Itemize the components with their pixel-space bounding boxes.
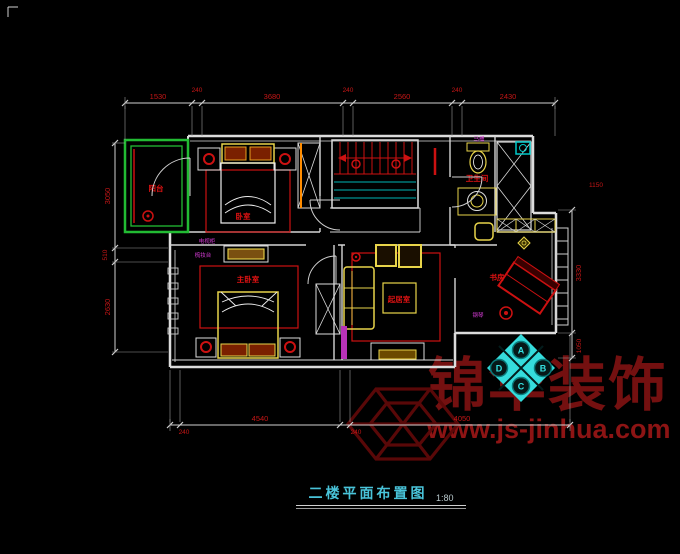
stair-arrow: [338, 154, 346, 162]
lamp-icon: [201, 342, 211, 352]
piano-stool-dot: [504, 311, 508, 315]
lamp-icon: [280, 154, 290, 164]
stair-arrow: [404, 154, 412, 162]
dresser-annotation: 梳妆台: [195, 251, 212, 259]
master-door-arc: [308, 256, 336, 284]
bathroom: 马桶 卫生间: [452, 135, 496, 215]
title-underline: [296, 505, 466, 506]
family-room: 起居室: [341, 245, 440, 360]
blanket-lines: [221, 292, 277, 312]
title-underline-2: [296, 508, 466, 509]
washbasin-inner: [471, 195, 483, 207]
blanket-lines: [225, 197, 271, 214]
watermark-logo: [348, 389, 458, 459]
pillow: [249, 344, 275, 356]
sheet-corner-mark: [8, 7, 18, 17]
stair-rails: [334, 182, 416, 198]
ceiling-lamp-dot: [355, 256, 357, 258]
toilet-tank: [467, 143, 489, 151]
dim-value: 2560: [394, 92, 411, 101]
dim-value: 1050: [576, 338, 583, 353]
bedroom-label: 卧室: [236, 211, 251, 221]
dim-value: 3680: [264, 92, 281, 101]
armchair: [399, 245, 421, 267]
drawing-scale: 1:80: [436, 493, 454, 503]
armchair: [376, 245, 396, 266]
flue-circle: [520, 145, 527, 152]
elevation-letter-c: C: [518, 382, 525, 392]
cad-floorplan-canvas: 锦华装饰 www.js-jinhua.com: [0, 0, 680, 554]
dim-value: 1150: [589, 182, 603, 189]
bedroom-door-arc: [310, 200, 340, 230]
dimension-chain-left: 3050 510 2630: [102, 140, 168, 355]
bedroom: 卧室: [198, 143, 340, 232]
drawing-title: 二楼平面布置图: [309, 483, 428, 503]
study-label: 书房: [490, 272, 505, 282]
dim-value: 3330: [574, 265, 583, 282]
pillow: [250, 147, 271, 160]
pillow: [225, 147, 246, 160]
dim-value: 240: [343, 87, 354, 94]
piano-annotation: 钢琴: [472, 311, 484, 319]
dim-value: 3050: [103, 188, 112, 205]
balcony-label: 阳台: [149, 183, 164, 193]
staircase: [332, 140, 418, 208]
magenta-bar: [341, 326, 347, 359]
lamp-icon: [204, 154, 214, 164]
balcony: 阳台: [125, 140, 190, 232]
floor-drain-dot: [147, 215, 150, 218]
title-block: 二楼平面布置图 1:80: [296, 483, 466, 509]
nightstand: [196, 338, 216, 357]
dim-value: 2630: [103, 299, 112, 316]
dim-value: 2430: [500, 92, 517, 101]
dimension-chain-right: 3330 1050 1150: [558, 182, 603, 361]
elevation-letter-b: B: [540, 364, 547, 374]
dim-value: 4050: [454, 414, 471, 423]
pillow: [221, 344, 247, 356]
toilet-bowl: [470, 151, 486, 173]
table-lamp-icon: [518, 237, 530, 249]
tv: [379, 350, 416, 359]
sofa-cushion-lines: [344, 271, 374, 325]
master-bedroom: 电视柜 梳妆台 主卧室: [168, 237, 340, 358]
bay-window: [552, 228, 568, 325]
piano: [498, 257, 559, 314]
nightstand: [280, 338, 300, 357]
closet: [497, 142, 531, 230]
dim-value: 4540: [252, 414, 269, 423]
desk-chair: [475, 223, 493, 240]
nightstand: [198, 148, 220, 170]
study: 书房 钢琴: [472, 219, 559, 319]
master-label: 主卧室: [237, 274, 260, 284]
dresser-top: [228, 249, 264, 259]
bathroom-label: 卫生间: [466, 173, 489, 183]
toilet-bowl-inner: [474, 155, 483, 169]
elevation-marker: A B C D: [487, 334, 555, 402]
sofa: [344, 267, 374, 329]
dim-value: 240: [179, 429, 190, 436]
lamp-icon: [285, 342, 295, 352]
dimension-chain-top: 1530 240 3680 240 2560 240 2430: [122, 87, 558, 140]
dim-value: 1530: [150, 92, 167, 101]
dim-value: 510: [102, 249, 109, 260]
floorplan-drawing: 阳台 卧室: [0, 0, 680, 554]
family-room-label: 起居室: [387, 294, 411, 304]
dim-value: 240: [452, 87, 463, 94]
elevation-letter-a: A: [518, 346, 525, 356]
elevation-letter-d: D: [496, 364, 503, 374]
tv-cabinet-annotation: 电视柜: [199, 237, 216, 245]
nightstand: [274, 148, 296, 170]
toilet-annotation: 马桶: [473, 135, 485, 143]
dim-value: 240: [192, 87, 203, 94]
dim-value: 240: [351, 429, 362, 436]
